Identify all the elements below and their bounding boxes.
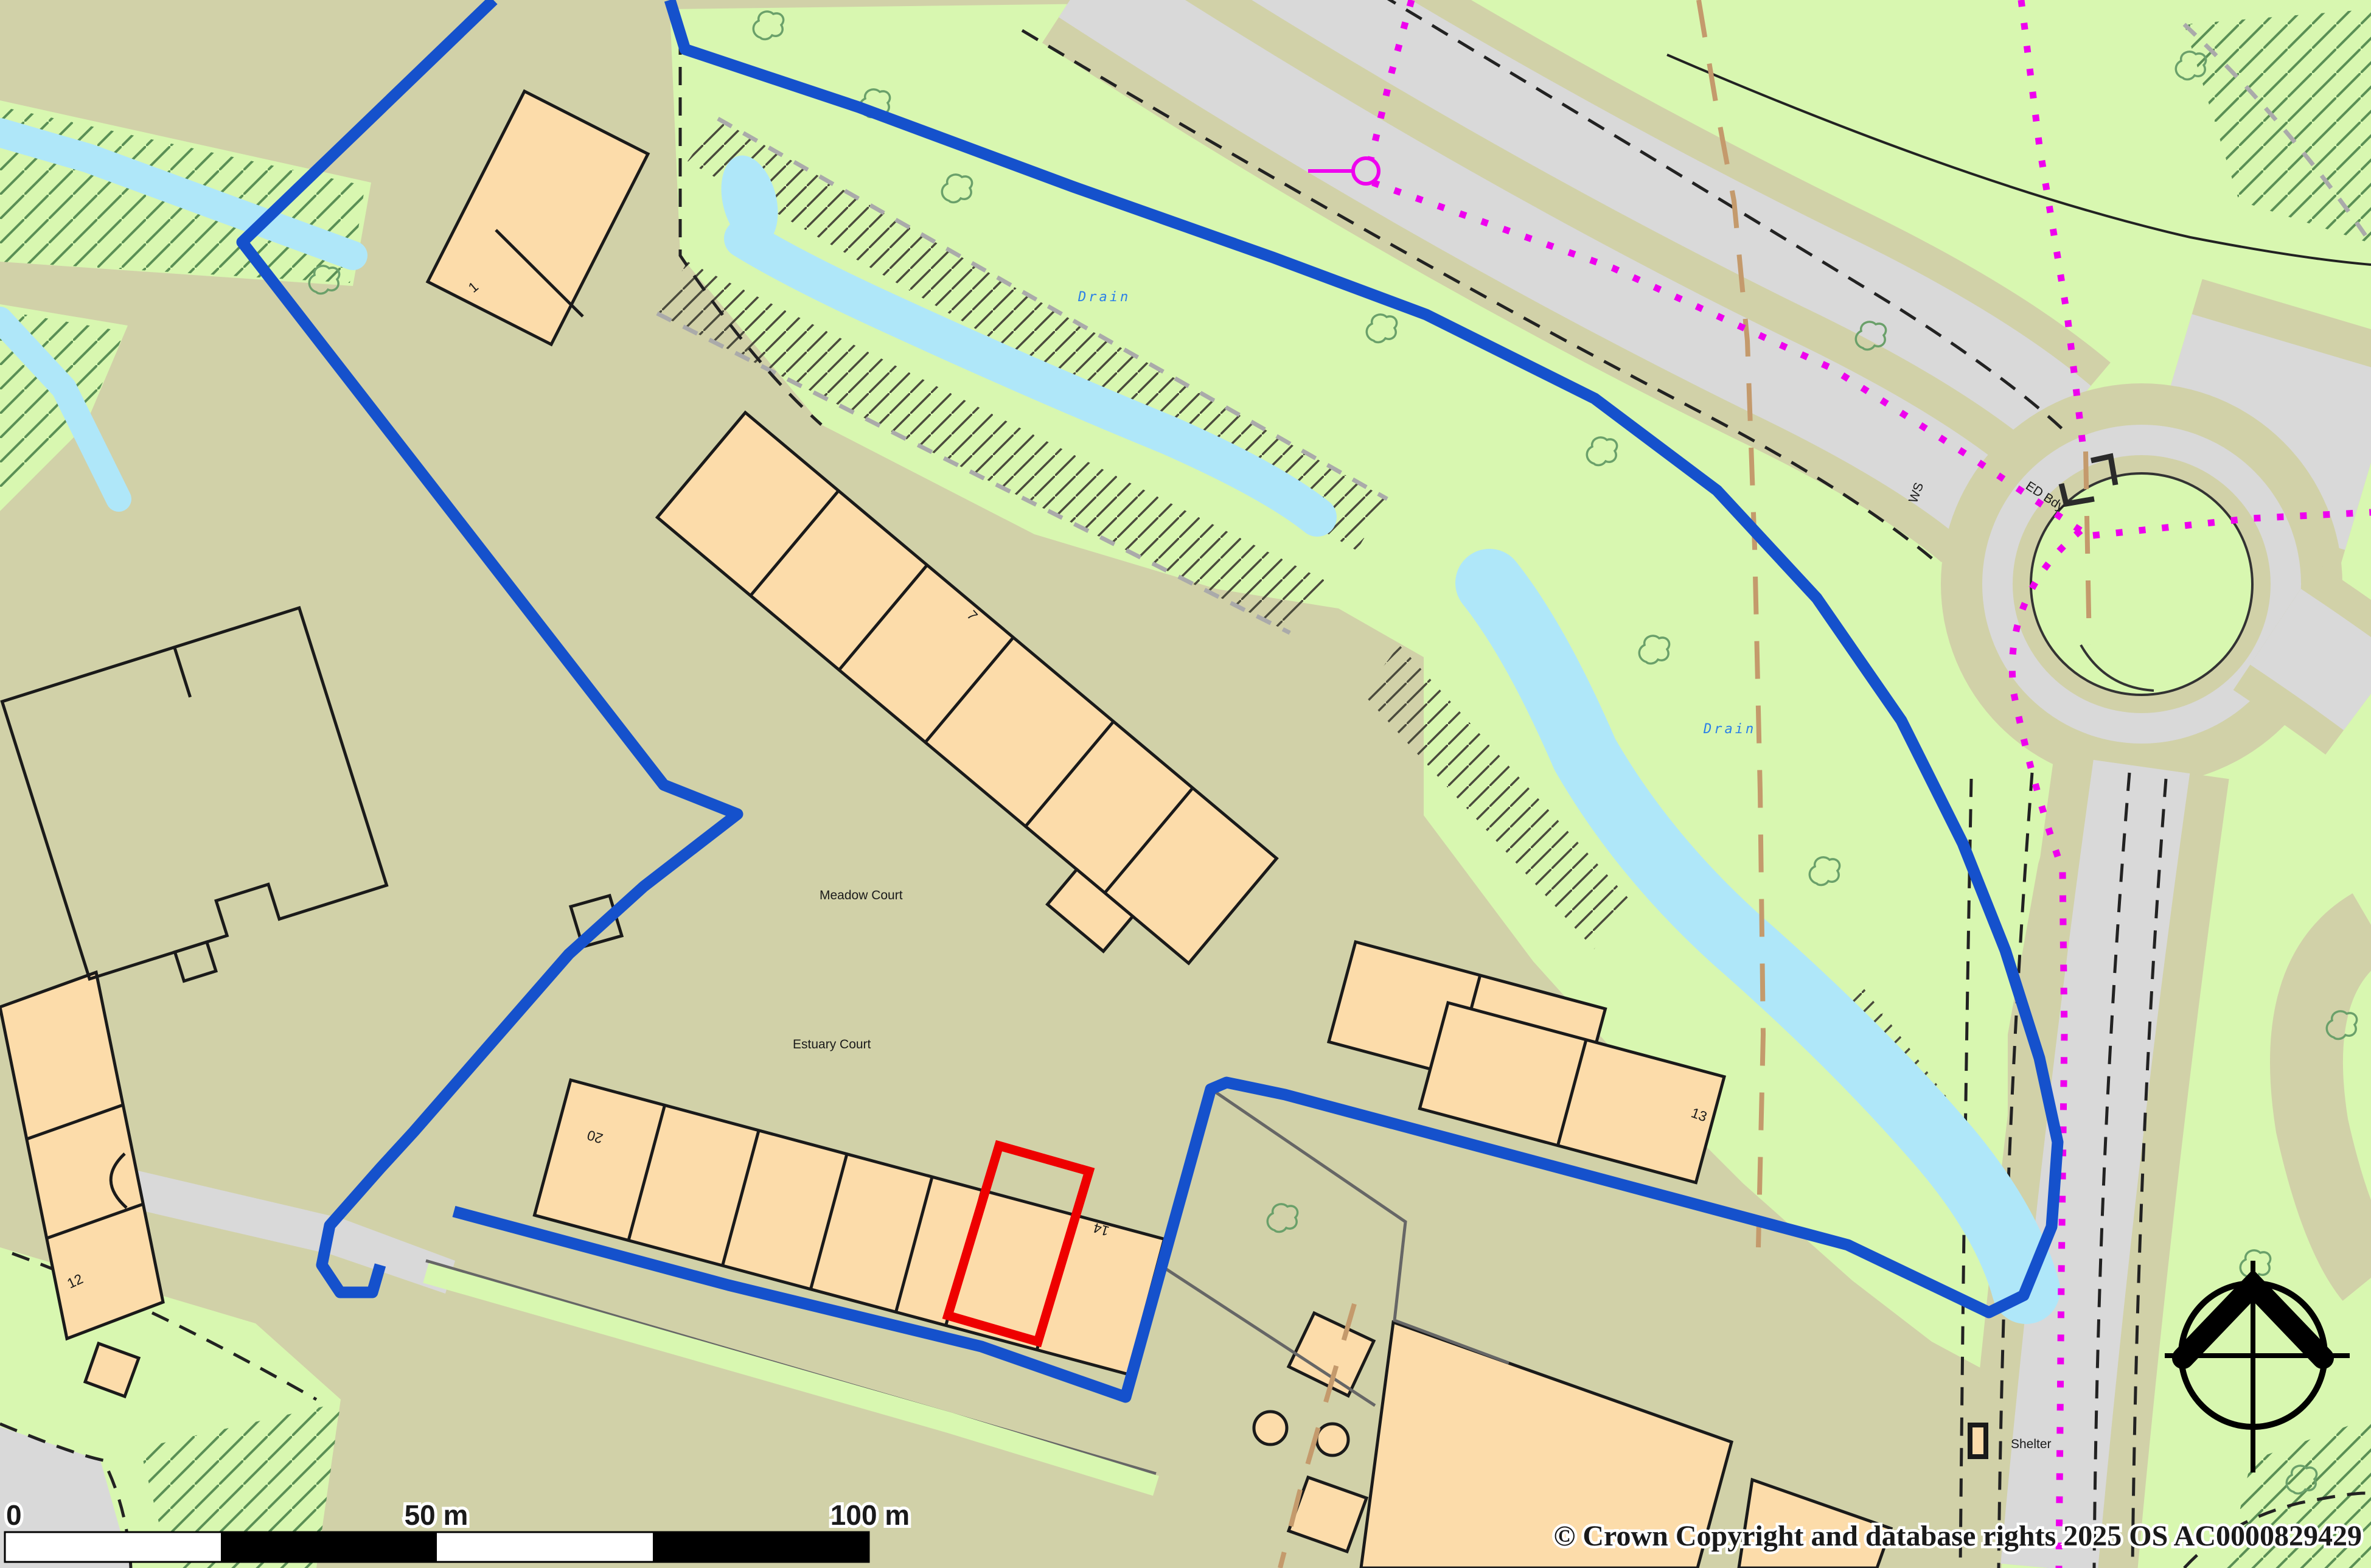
map-canvas[interactable]: Meadow Court Estuary Court Drain Drain E… bbox=[0, 0, 2371, 1568]
label-shelter: Shelter bbox=[2011, 1437, 2052, 1451]
building-shelter bbox=[1970, 1425, 1986, 1457]
label-estuary-court: Estuary Court bbox=[793, 1037, 871, 1051]
east-road-carriageway bbox=[2275, 627, 2371, 694]
label-drain-lower: Drain bbox=[1703, 722, 1756, 737]
copyright-attribution: © Crown Copyright and database rights 20… bbox=[1554, 1520, 2362, 1552]
scale-label-50: 50 m bbox=[405, 1499, 468, 1531]
scale-label-0: 0 bbox=[6, 1499, 22, 1531]
scale-bar-seg2 bbox=[221, 1532, 437, 1562]
scale-bar-seg4 bbox=[653, 1532, 869, 1562]
label-drain-upper: Drain bbox=[1078, 290, 1130, 305]
os-map: Meadow Court Estuary Court Drain Drain E… bbox=[0, 0, 2371, 1568]
scale-label-100: 100 m bbox=[830, 1499, 910, 1531]
label-meadow-court: Meadow Court bbox=[820, 888, 903, 902]
